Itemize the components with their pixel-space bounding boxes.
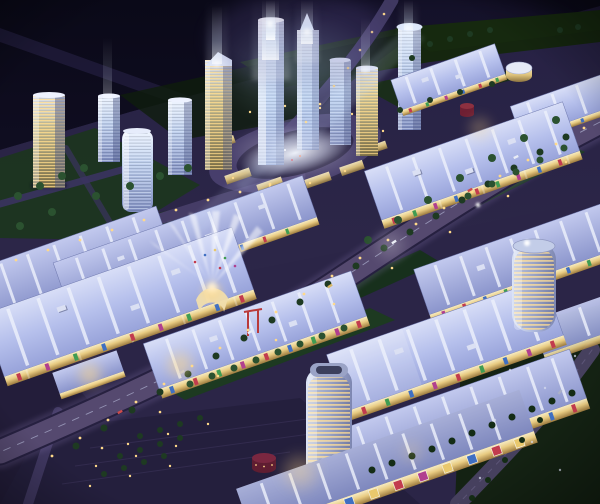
city-night-render (0, 0, 600, 504)
render-canvas (0, 0, 600, 504)
vignette (0, 0, 600, 504)
